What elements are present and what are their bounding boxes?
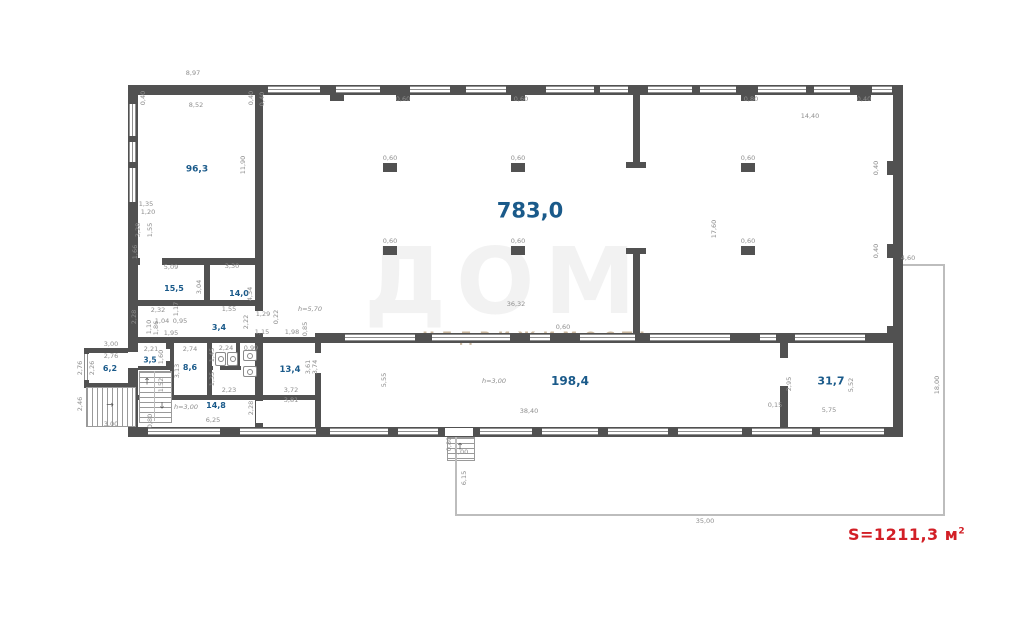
yard-boundary	[903, 264, 945, 266]
dim-label: 0,60	[514, 96, 528, 103]
total-area-value: S=1211,3 м	[848, 525, 958, 544]
window	[345, 334, 415, 341]
dim-label: 0,40	[873, 161, 880, 175]
column	[383, 163, 397, 172]
dim-label: 1,52	[158, 378, 165, 392]
stair-arrow-icon: ↑	[143, 379, 151, 388]
window	[608, 428, 668, 435]
dim-label: 1,20	[141, 209, 155, 216]
dim-label: 5,75	[822, 407, 836, 414]
dim-label: 1,17	[173, 302, 180, 316]
window	[580, 334, 635, 341]
column	[740, 333, 756, 343]
wall	[138, 366, 170, 370]
column	[511, 246, 525, 255]
ceiling-height-label: h=3,00	[482, 378, 506, 385]
dim-label: 3,81	[284, 397, 298, 404]
dim-label: 1,29	[256, 311, 270, 318]
window	[129, 142, 136, 162]
window	[542, 428, 598, 435]
dim-label: 1,45	[209, 348, 216, 362]
dim-label: 2,28	[248, 401, 255, 415]
column	[887, 161, 893, 175]
stair-arrow-icon: →	[106, 402, 114, 411]
window	[700, 86, 736, 93]
dim-label: 2,76	[77, 361, 84, 375]
dim-label: 1,00	[454, 449, 468, 456]
stairs	[154, 371, 155, 421]
toilet-icon	[227, 352, 238, 366]
wall	[128, 300, 261, 306]
dim-label: 1,95	[164, 330, 178, 337]
window	[872, 86, 892, 93]
dim-label: 0,95	[173, 318, 187, 325]
window	[240, 428, 316, 435]
column	[741, 246, 755, 255]
window	[758, 86, 806, 93]
dim-label: 1,86	[153, 321, 160, 335]
window	[814, 86, 850, 93]
room-area-label: 13,4	[280, 366, 301, 375]
window	[530, 334, 550, 341]
dim-label: 1,35	[139, 201, 153, 208]
window	[795, 334, 865, 341]
dim-label: 0,80	[744, 96, 758, 103]
window	[678, 428, 742, 435]
window	[752, 428, 812, 435]
yard-boundary	[455, 514, 945, 516]
dim-label: 36,32	[507, 301, 526, 308]
dim-label: 0,60	[556, 324, 570, 331]
dim-label: 2,32	[151, 307, 165, 314]
room-area-label: 3,4	[212, 324, 226, 332]
dim-label: 3,30	[225, 263, 239, 270]
floor-plan: ДОМ НЕДВИЖИМОСТЬ	[0, 0, 1023, 623]
dim-label: 2,23	[222, 387, 236, 394]
room-area-label: 6,2	[103, 365, 117, 373]
wall	[626, 248, 646, 254]
dim-label: 6,15	[461, 471, 468, 485]
window	[398, 428, 438, 435]
dim-label: 0,40	[259, 92, 266, 106]
dim-label: 2,28	[131, 310, 138, 324]
dim-label: 17,60	[711, 220, 718, 239]
dim-label: 0,40	[873, 244, 880, 258]
dim-label: 1,35	[209, 372, 216, 386]
dim-label: 4,34	[247, 287, 254, 301]
window	[546, 86, 594, 93]
dim-label: 0,80	[147, 414, 154, 428]
door-opening	[213, 366, 220, 370]
column	[383, 246, 397, 255]
window	[820, 428, 884, 435]
dim-label: 0,40	[140, 91, 147, 105]
dim-label: 1,98	[285, 329, 299, 336]
total-area-label: S=1211,3 м2	[848, 527, 965, 543]
window	[480, 428, 532, 435]
dim-label: 3,74	[312, 360, 319, 374]
dim-label: 14,40	[801, 113, 820, 120]
dim-label: 1,60	[158, 350, 165, 364]
stair-arrow-icon: ↓	[158, 403, 166, 412]
dim-label: 3,04	[196, 280, 203, 294]
dim-label: 0,80	[446, 437, 453, 451]
total-area-sup: 2	[958, 527, 965, 537]
dim-label: 0,60	[383, 155, 397, 162]
window	[432, 334, 510, 341]
dim-label: 3,00	[104, 341, 118, 348]
dim-label: 8,52	[189, 102, 203, 109]
room-area-label: 3,5	[143, 356, 156, 364]
window	[760, 334, 776, 341]
door-opening	[166, 349, 170, 361]
column	[887, 244, 893, 258]
dim-label: 2,26	[89, 361, 96, 375]
dim-label: 18,00	[934, 376, 941, 395]
window	[648, 86, 692, 93]
dim-label: 2,46	[77, 397, 84, 411]
dim-label: 3,28	[135, 223, 142, 237]
dim-label: 4,60	[901, 255, 915, 262]
dim-label: 2,95	[786, 377, 793, 391]
dim-label: 1,55	[147, 223, 154, 237]
dim-label: 0,22	[273, 310, 280, 324]
ceiling-height-label: h=3,00	[174, 404, 198, 411]
dim-label: 5,55	[381, 373, 388, 387]
dim-label: 11,90	[240, 156, 247, 175]
dim-label: 5,52	[848, 378, 855, 392]
dim-label: 0,60	[511, 238, 525, 245]
column	[330, 95, 344, 101]
dim-label: 2,76	[104, 353, 118, 360]
toilet-icon	[215, 352, 226, 366]
door-opening	[140, 258, 162, 265]
dim-label: 35,00	[696, 518, 715, 525]
room-area-label: 31,7	[817, 376, 844, 387]
ceiling-height-label: h=5,70	[298, 306, 322, 313]
dim-label: 0,40	[857, 96, 871, 103]
door-opening	[445, 428, 473, 436]
watermark-logo: ДОМ	[364, 236, 646, 328]
dim-label: 1,55	[222, 306, 236, 313]
dim-label: 3,72	[284, 387, 298, 394]
door-opening	[128, 352, 138, 368]
wall	[633, 252, 640, 339]
room-area-label: 14,8	[206, 402, 226, 410]
window	[650, 334, 730, 341]
dim-label: 0,60	[383, 238, 397, 245]
column	[741, 163, 755, 172]
window	[330, 428, 388, 435]
door-opening	[256, 401, 263, 423]
dim-label: 1,15	[255, 329, 269, 336]
window	[410, 86, 450, 93]
dim-label: 0,15	[768, 402, 782, 409]
dim-label: 0,60	[396, 96, 410, 103]
dim-label: 2,22	[243, 315, 250, 329]
dim-label: 0,60	[741, 238, 755, 245]
window	[600, 86, 628, 93]
wall	[204, 264, 210, 304]
wall	[633, 95, 640, 168]
dim-label: 2,24	[219, 345, 233, 352]
dim-label: 8,97	[186, 70, 200, 77]
dim-label: 5,09	[164, 264, 178, 271]
dim-label: 2,74	[183, 346, 197, 353]
window	[268, 86, 320, 93]
wall	[128, 337, 320, 343]
dim-label: 0,60	[741, 155, 755, 162]
dim-label: 3,00	[104, 421, 118, 428]
window	[336, 86, 380, 93]
yard-boundary	[943, 264, 945, 516]
dim-label: 0,99	[244, 345, 258, 352]
room-area-label: 96,3	[186, 166, 208, 175]
room-area-label: 8,6	[183, 364, 197, 372]
dim-label: 1,66	[132, 245, 139, 259]
room-area-label: 15,5	[164, 285, 184, 293]
window	[129, 104, 136, 136]
window	[466, 86, 506, 93]
column	[511, 163, 525, 172]
column	[555, 333, 571, 343]
dim-label: 6,25	[206, 417, 220, 424]
room-area-label: 198,4	[551, 375, 589, 387]
window	[148, 428, 220, 435]
room-area-label: 783,0	[497, 201, 563, 222]
dim-label: 3,13	[174, 364, 181, 378]
wall	[626, 162, 646, 168]
dim-label: 0,60	[511, 155, 525, 162]
toilet-icon	[243, 366, 257, 377]
dim-label: 38,40	[520, 408, 539, 415]
dim-label: 0,85	[302, 322, 309, 336]
dim-label: 0,40	[248, 91, 255, 105]
column	[887, 326, 893, 340]
window	[129, 168, 136, 202]
